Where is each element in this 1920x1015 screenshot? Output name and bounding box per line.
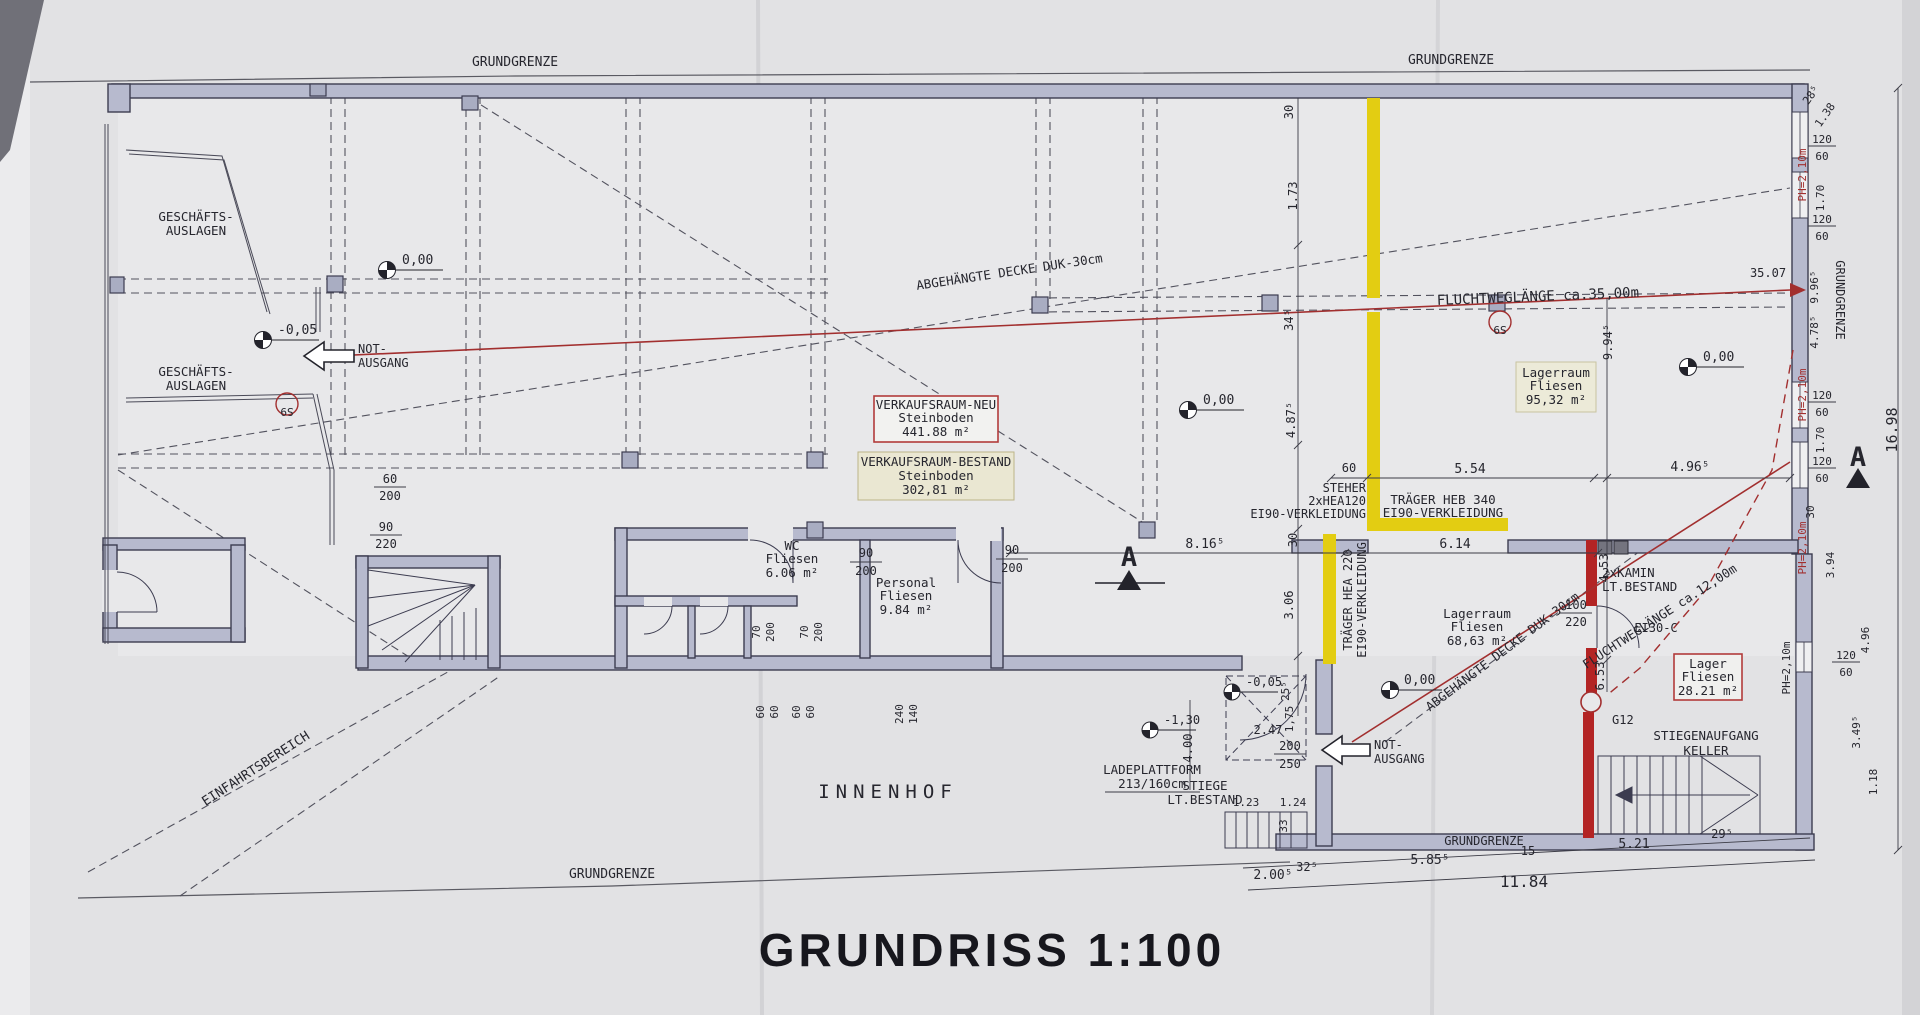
elevation-value: -0,05	[278, 323, 317, 338]
dim: 3.49⁵	[1850, 715, 1863, 748]
notausgang-label: AUSGANG	[1374, 752, 1425, 766]
room-floor: Fliesen	[1530, 378, 1583, 393]
stiegenaufgang-label: KELLER	[1683, 743, 1729, 758]
dim: 5.85⁵	[1410, 853, 1449, 868]
dim: 33	[1277, 819, 1290, 832]
geschaefts-auslagen-label: AUSLAGEN	[166, 223, 226, 238]
dim: 2.47	[1254, 723, 1283, 737]
stiegenaufgang-label: STIEGENAUFGANG	[1653, 728, 1758, 743]
door-dim: 70	[798, 625, 811, 638]
door-dim: 100	[1565, 598, 1587, 612]
dim: 3.94	[1824, 551, 1837, 578]
dim: 3.06	[1282, 591, 1296, 620]
door-dim: 140	[907, 704, 920, 724]
door-dim: 70	[750, 625, 763, 638]
door-dim: 60	[790, 705, 803, 718]
geschaefts-auslagen-label: GESCHÄFTS-	[158, 209, 233, 224]
door-dim: 60	[383, 472, 397, 486]
wc-stall-divider	[688, 606, 695, 658]
room-floor: Fliesen	[1682, 669, 1735, 684]
stair-block-east-wall	[488, 556, 500, 668]
wall-north-lowerright	[1508, 540, 1798, 553]
dim: 30	[1286, 533, 1300, 547]
room-area: 302,81 m²	[902, 482, 970, 497]
dim: 29⁵	[1711, 827, 1733, 841]
stiege-label: STIEGE	[1182, 778, 1227, 793]
notausgang-label: AUSGANG	[358, 356, 409, 370]
grundgrenze-label: GRUNDGRENZE	[1444, 834, 1523, 848]
kamin-label: LT.BESTAND	[1602, 579, 1677, 594]
elevation-value: 0,00	[1703, 350, 1734, 365]
room-name: VERKAUFSRAUM-BESTAND	[861, 454, 1012, 469]
wall-west-lowerright	[1316, 766, 1332, 846]
traeger-heb-label: EI90-VERKLEIDUNG	[1383, 505, 1503, 520]
door-dim: 200	[1001, 561, 1023, 575]
dim: 6.53	[1593, 662, 1607, 691]
stiege-label: LT.BESTAND	[1167, 792, 1242, 807]
elevation-value: 0,00	[1203, 393, 1234, 408]
dim: 4,53	[1597, 554, 1611, 583]
room-sw-right-wall	[231, 545, 245, 642]
ladeplattform-label: LADEPLATTFORM	[1103, 762, 1201, 777]
fluchtweg-length: 35.07	[1750, 266, 1786, 280]
dim: 8.16⁵	[1185, 537, 1224, 552]
door-dim: 90	[1005, 543, 1019, 557]
innenhof-label: INNENHOF	[818, 781, 958, 803]
room-area: 6.06 m²	[766, 565, 819, 580]
dim: 9.96⁵	[1808, 270, 1821, 303]
section-letter: A	[1121, 542, 1137, 573]
plan-title: GRUNDRISS 1:100	[759, 924, 1225, 976]
window-dim: 60	[1815, 472, 1828, 485]
dim: 1,75	[1283, 706, 1296, 733]
dim: 32⁵	[1296, 860, 1318, 874]
room-area: 9.84 m²	[880, 602, 933, 617]
dim: 4.00	[1181, 734, 1195, 763]
dim: 11.84	[1500, 872, 1548, 891]
door-dim: 200	[764, 622, 777, 642]
traeger-hea220-beam	[1323, 534, 1336, 664]
window-dim: 120	[1836, 649, 1856, 662]
elevation-value: -1,30	[1164, 713, 1200, 727]
window-dim: 60	[1815, 230, 1828, 243]
dim: 30	[1282, 105, 1296, 119]
geschaefts-auslagen-label: GESCHÄFTS-	[158, 364, 233, 379]
door-dim: 60	[754, 705, 767, 718]
room-sw-top-wall	[103, 538, 245, 550]
room-floor: Steinboden	[898, 468, 973, 483]
s9-label: S9	[1493, 323, 1506, 336]
door-dim: 200	[812, 622, 825, 642]
g12-label: G12	[1612, 713, 1634, 727]
room-floor: Fliesen	[766, 551, 819, 566]
scanned-floor-plan: A A 0,00 -0,05 0,00 0,00 0,00 -0,05 -1,3…	[0, 0, 1920, 1015]
grundgrenze-label: GRUNDGRENZE	[569, 867, 655, 882]
dim: 1.18	[1867, 769, 1880, 796]
door-dim: 250	[1279, 757, 1301, 771]
dim: 9.94⁵	[1601, 324, 1615, 360]
wall-east-lower	[1796, 554, 1812, 850]
dim: 2.00⁵	[1253, 868, 1292, 883]
door-dim: 60	[768, 705, 781, 718]
ph-dim: PH=2,10m	[1796, 148, 1809, 201]
elevation-value: 0,00	[402, 253, 433, 268]
room-floor: Fliesen	[1451, 619, 1504, 634]
door-dim: 220	[1565, 615, 1587, 629]
wall-north	[112, 84, 1804, 98]
door-dim: 60	[804, 705, 817, 718]
corner-column	[108, 84, 130, 112]
window-dim: 120	[1812, 133, 1832, 146]
steher-label: STEHER	[1323, 481, 1367, 495]
grundgrenze-label: GRUNDGRENZE	[472, 55, 558, 70]
window-dim: 60	[1839, 666, 1852, 679]
dim: 1.73	[1286, 182, 1300, 211]
dim: 25⁵	[1279, 681, 1292, 701]
window-dim: 120	[1812, 455, 1832, 468]
dim: 16.98	[1883, 407, 1901, 452]
geschaefts-auslagen-label: AUSLAGEN	[166, 378, 226, 393]
room-sw-bottom-wall	[103, 628, 245, 642]
door-dim: 200	[379, 489, 401, 503]
steher-label: 2xHEA120	[1308, 494, 1366, 508]
window-dim: 60	[1815, 150, 1828, 163]
room-floor: Steinboden	[898, 410, 973, 425]
grundgrenze-label: GRUNDGRENZE	[1408, 53, 1494, 68]
notausgang-label: NOT-	[358, 342, 387, 356]
steher-label: EI90-VERKLEIDUNG	[1250, 507, 1366, 521]
room-area: 441.88 m²	[902, 424, 970, 439]
door-dim: 90	[859, 546, 873, 560]
elevation-value: -0,05	[1246, 675, 1282, 689]
elevation-value: 0,00	[1404, 673, 1435, 688]
ph-dim: PH=2,10m	[1796, 521, 1809, 574]
kamin-hatch	[1614, 541, 1628, 554]
ph-dim: PH=2,10m	[1796, 368, 1809, 421]
steher-beam-upper	[1367, 98, 1380, 298]
dim: 4.87⁵	[1284, 402, 1298, 438]
dim: 4.96⁵	[1670, 460, 1709, 475]
paper-background	[0, 0, 1920, 1015]
traeger-hea-label: EI90-VERKLEIDUNG	[1355, 542, 1369, 658]
dim: 1.70	[1814, 427, 1827, 454]
dim: 6.14	[1439, 537, 1470, 552]
ph-dim: PH=2,10m	[1780, 641, 1793, 694]
dim: 4.78⁵	[1808, 315, 1821, 348]
dim: 30	[1804, 505, 1817, 518]
traeger-hea-label: TRÄGER HEA 220	[1340, 549, 1355, 650]
g12-door-circle	[1581, 692, 1601, 712]
window-dim: 120	[1812, 389, 1832, 402]
room-area: 28.21 m²	[1678, 683, 1738, 698]
dim: 1.24	[1280, 796, 1307, 809]
dim: 15	[1521, 844, 1535, 858]
dim: 1.70	[1814, 185, 1827, 212]
window-dim: 60	[1815, 406, 1828, 419]
dim: 5.21	[1618, 837, 1649, 852]
kamin-hatch	[1598, 541, 1612, 554]
steher-beam-lower	[1367, 312, 1380, 525]
dim: 60	[1342, 461, 1356, 475]
door-dim: 200	[855, 564, 877, 578]
notausgang-label: NOT-	[1374, 738, 1403, 752]
door-dim: 90	[379, 520, 393, 534]
room-area: 95,32 m²	[1526, 392, 1586, 407]
dim: 5.54	[1454, 462, 1485, 477]
door-dim: 200	[1279, 739, 1301, 753]
ladeplattform-label: 213/160cm	[1118, 776, 1186, 791]
grundgrenze-label: GRUNDGRENZE	[1833, 260, 1847, 339]
stair-block-west-wall	[356, 556, 368, 668]
dim: 34⁵	[1282, 309, 1296, 331]
wc-block-east-wall	[991, 528, 1003, 668]
window-dim: 120	[1812, 213, 1832, 226]
door-dim: 220	[375, 537, 397, 551]
door-dim: 240	[893, 704, 906, 724]
dim: 4.96	[1859, 627, 1872, 654]
dim: 1.23	[1233, 796, 1260, 809]
s9-label: S9	[280, 405, 293, 418]
stair-block-top-wall	[356, 556, 500, 568]
room-floor: Fliesen	[880, 588, 933, 603]
wall-west-lowerright	[1316, 660, 1332, 734]
